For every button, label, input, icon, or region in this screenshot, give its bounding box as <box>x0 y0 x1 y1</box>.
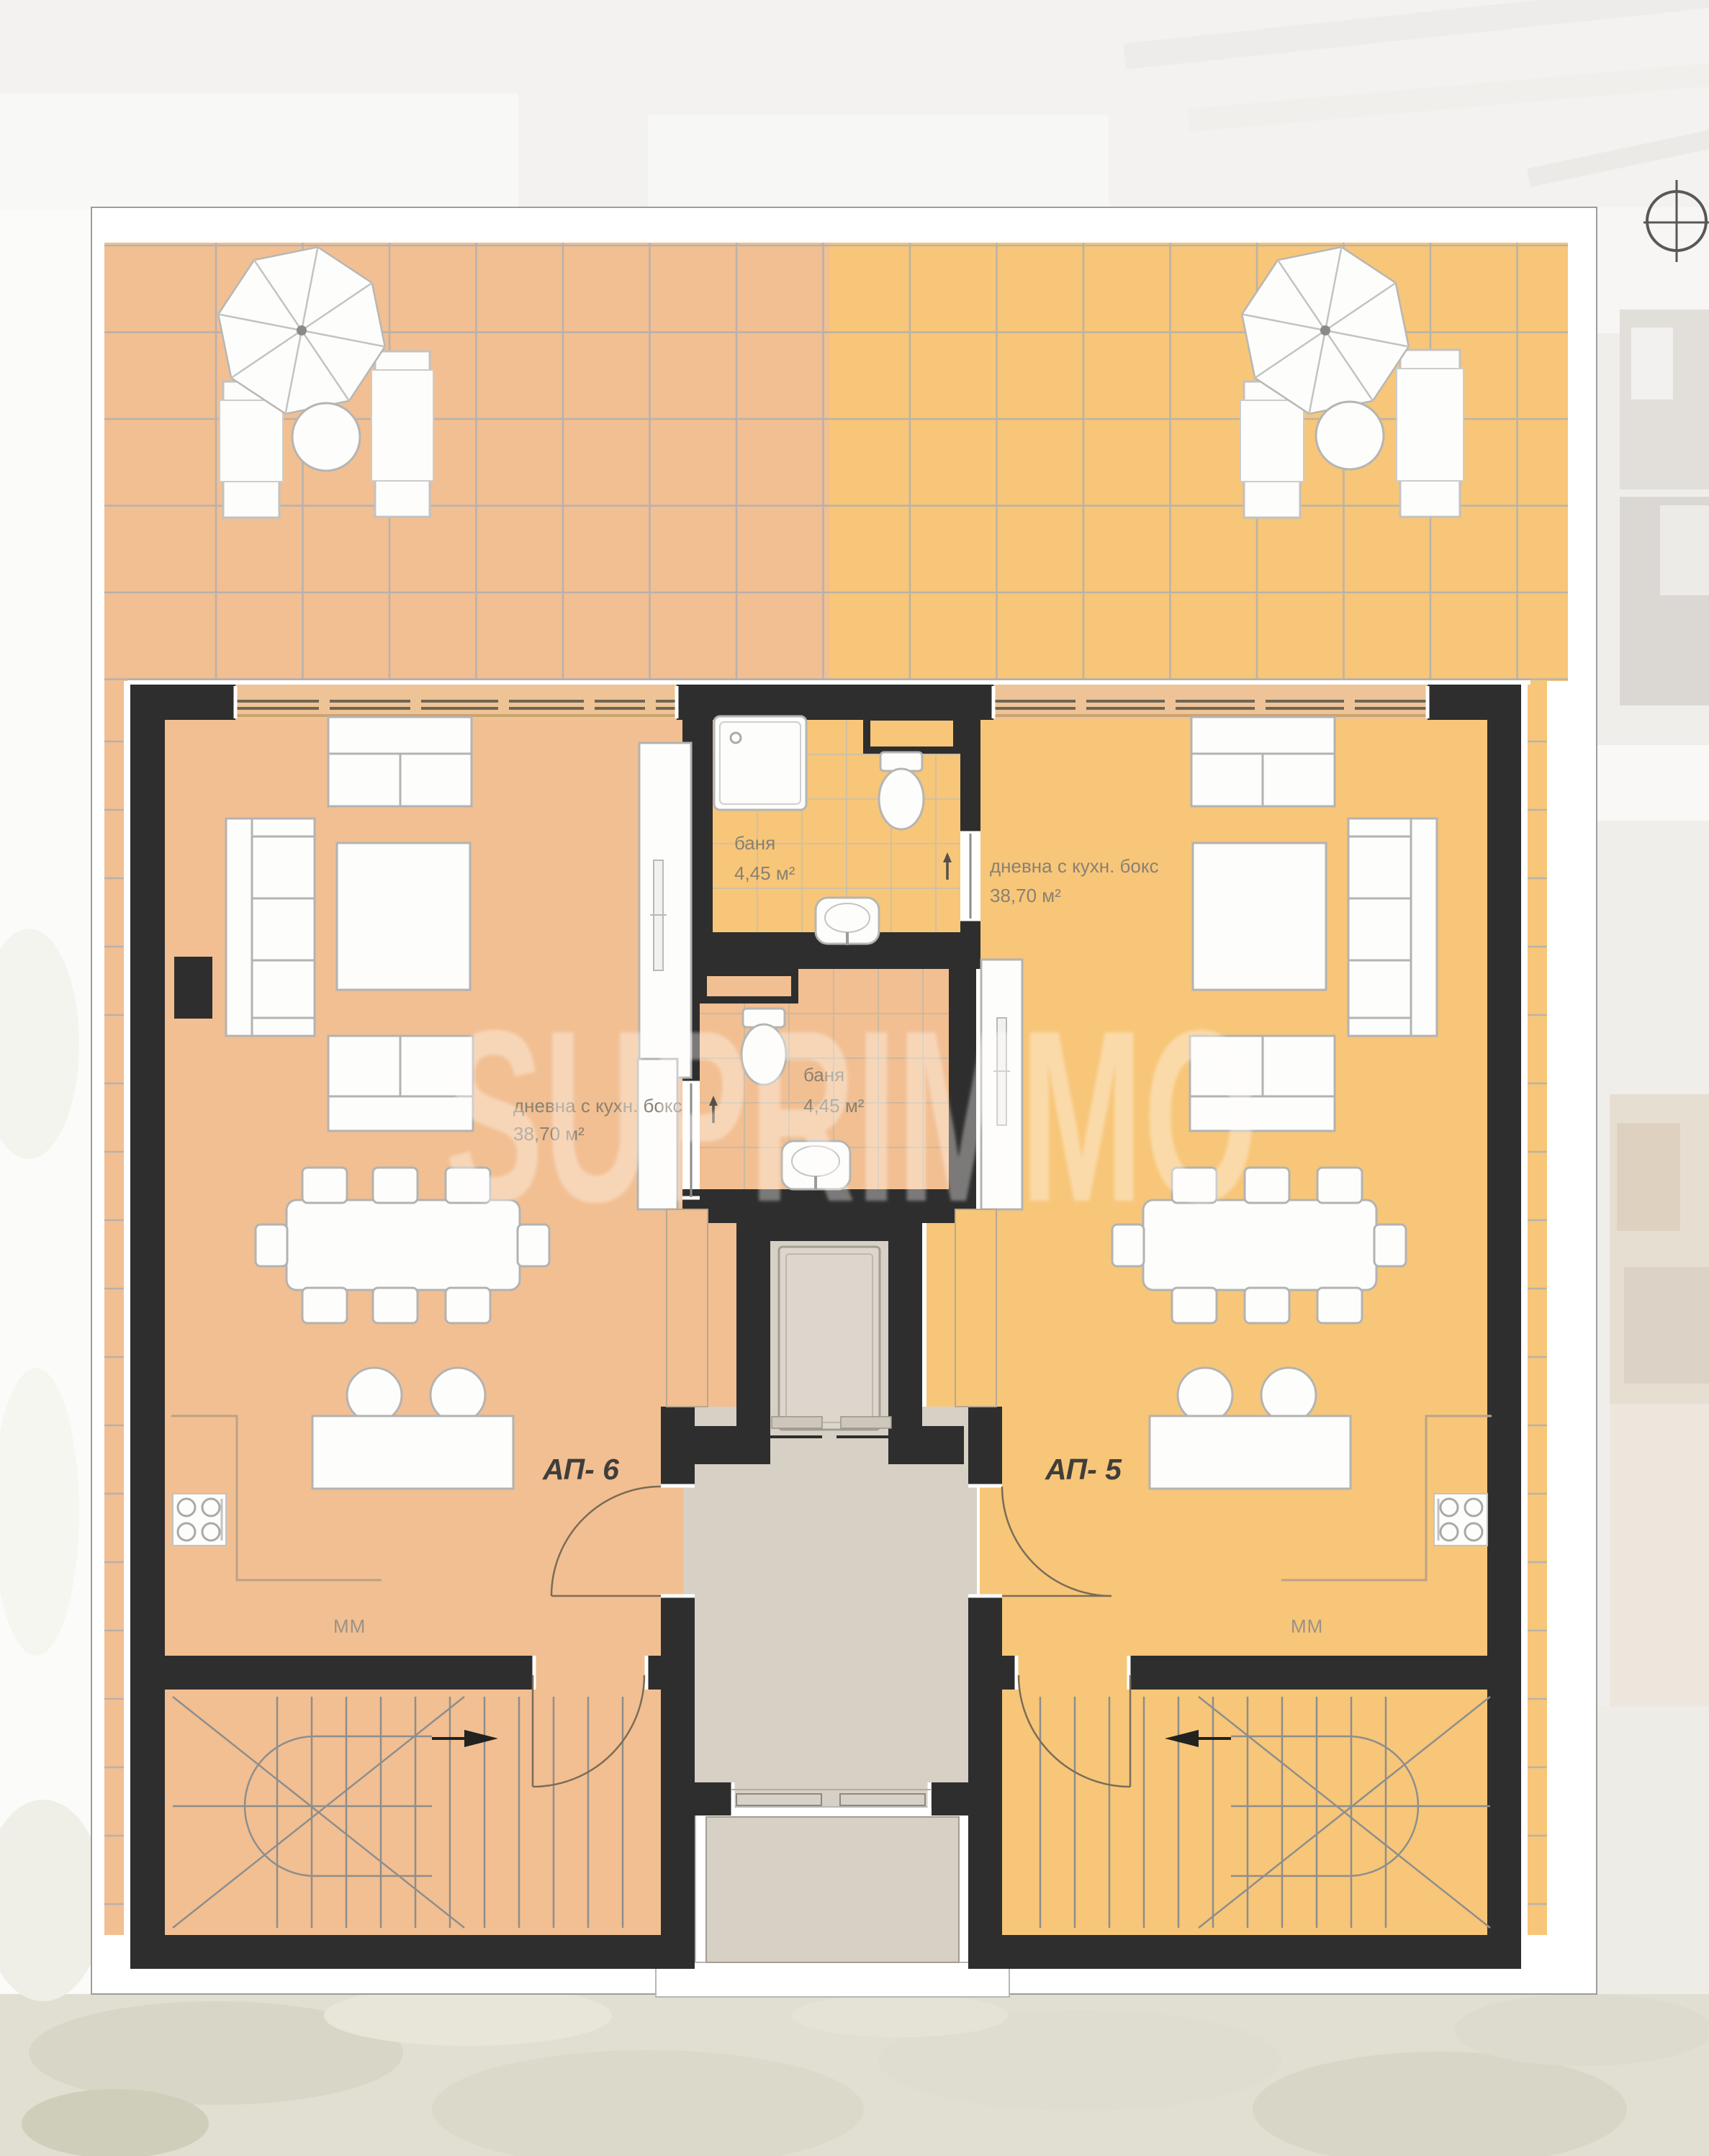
svg-text:38,70 м²: 38,70 м² <box>990 885 1061 906</box>
svg-text:MM: MM <box>1291 1615 1323 1637</box>
svg-text:SUPRIMMO: SUPRIMMO <box>445 980 1258 1253</box>
svg-text:АП- 5: АП- 5 <box>1045 1453 1122 1486</box>
svg-text:дневна с кухн. бокс: дневна с кухн. бокс <box>990 855 1159 877</box>
svg-text:АП- 6: АП- 6 <box>542 1453 620 1486</box>
svg-text:баня: баня <box>734 832 775 854</box>
svg-text:MM: MM <box>333 1615 366 1637</box>
svg-text:4,45 м²: 4,45 м² <box>734 862 795 884</box>
